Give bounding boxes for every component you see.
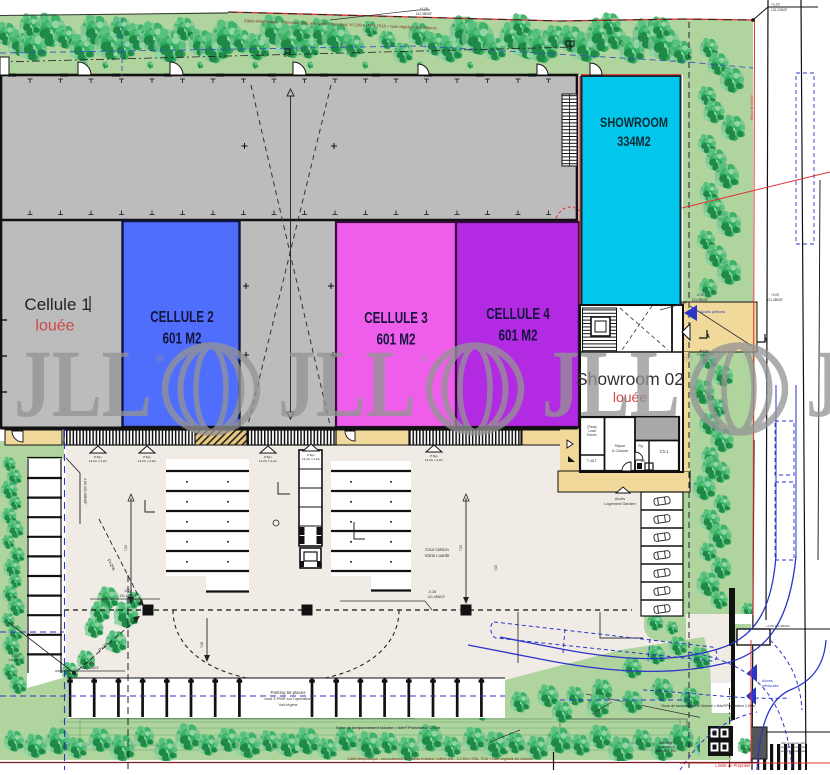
svg-text:601 M2: 601 M2 [163,329,202,347]
svg-text:7,00: 7,00 [459,545,463,551]
svg-text:Noue de tamponnement Volume =: Noue de tamponnement Volume = 64m³/Profo… [661,704,755,708]
svg-text:JLL: JLL [806,330,830,437]
svg-text:131,38NGF: 131,38NGF [767,298,784,302]
svg-text:131,36NGF: 131,36NGF [8,658,24,662]
svg-text:7,00: 7,00 [200,642,204,648]
svg-text:+1,05: +1,05 [420,7,429,11]
svg-text:SHOWROOM: SHOWROOM [600,115,668,131]
svg-text:®: ® [156,353,164,365]
svg-text:14,2m x 4,2m: 14,2m x 4,2m [259,459,278,463]
svg-text:131,08NGF: 131,08NGF [427,595,445,599]
svg-text:Séjour: Séjour [615,444,627,448]
svg-text:131,08NGF: 131,08NGF [119,594,137,598]
svg-text:Logement Gardien: Logement Gardien [604,502,635,506]
svg-text:Recul de 5,00m: Recul de 5,00m [750,95,754,120]
svg-text:sdb: sdb [641,459,646,463]
svg-text:+0,00 131,38NGF: +0,00 131,38NGF [766,624,790,628]
svg-text:131,08NGF: 131,08NGF [692,298,709,302]
svg-text:JLL: JLL [14,330,152,437]
svg-text:Cellule 1: Cellule 1 [24,295,90,314]
svg-text:Noue de tamponnement Volume =: Noue de tamponnement Volume = 64m³ Profo… [336,725,441,730]
svg-text:CELLULE 4: CELLULE 4 [486,304,550,322]
svg-text:14,2m x 4,2m: 14,2m x 4,2m [138,459,157,463]
svg-text:Voit.légère: Voit.légère [279,702,299,707]
svg-text:+0,00: +0,00 [85,661,94,665]
svg-text:132,38NGF: 132,38NGF [416,12,433,16]
svg-text:Câble téléphonique - raccordem: Câble téléphonique - raccordement au rés… [347,757,533,761]
svg-text:334M2: 334M2 [617,134,650,150]
svg-text:®: ® [420,353,428,365]
svg-text:-0,28: -0,28 [124,589,132,593]
svg-text:Limite de Propriété: Limite de Propriété [715,763,751,768]
svg-text:131,36NGF: 131,36NGF [81,666,99,670]
svg-text:CELLULE 3: CELLULE 3 [364,308,428,326]
svg-text:déchets 1:100: déchets 1:100 [656,749,676,753]
svg-text:A: A [706,334,710,340]
svg-text:A: A [764,338,768,344]
svg-text:véhicules: véhicules [762,683,779,688]
svg-text:JLL: JLL [542,330,680,437]
svg-text:+1,20: +1,20 [771,3,780,7]
svg-text:601 M2: 601 M2 [499,326,538,344]
svg-text:Rg.: Rg. [639,444,644,448]
svg-text:-0,28: -0,28 [428,590,436,594]
svg-text:-0,00: -0,00 [696,293,703,297]
svg-text:sur la voie publique: sur la voie publique [781,749,806,753]
svg-text:Cour camion: Cour camion [425,547,449,552]
svg-text:Voirie Lourde: Voirie Lourde [425,553,450,558]
svg-text:4,00 131,08NGF: 4,00 131,08NGF [83,478,87,505]
svg-text:Accès: Accès [615,497,625,501]
svg-text:JLL: JLL [278,330,416,437]
svg-text:CELLULE 2: CELLULE 2 [150,307,214,325]
svg-text:14,2m x 4,2m: 14,2m x 4,2m [302,457,321,461]
svg-text:®: ® [684,353,692,365]
svg-text:Parking 56 places: Parking 56 places [271,690,307,695]
svg-text:Ch.1: Ch.1 [660,449,670,454]
svg-text:7,00: 7,00 [494,565,498,571]
svg-text:7,00: 7,00 [124,545,128,551]
svg-text:14,2m x 4,2m: 14,2m x 4,2m [425,458,444,462]
svg-text:T-4&T.: T-4&T. [587,459,598,463]
svg-text:132,20NGF: 132,20NGF [771,8,788,12]
svg-text:+0,00: +0,00 [771,293,779,297]
svg-text:Accès piétons: Accès piétons [700,309,725,314]
svg-text:14,2m x 4,2m: 14,2m x 4,2m [89,459,108,463]
svg-text:dont 3 PMR sur l'opération: dont 3 PMR sur l'opération [264,696,311,701]
svg-text:& Cuisine: & Cuisine [612,449,628,453]
